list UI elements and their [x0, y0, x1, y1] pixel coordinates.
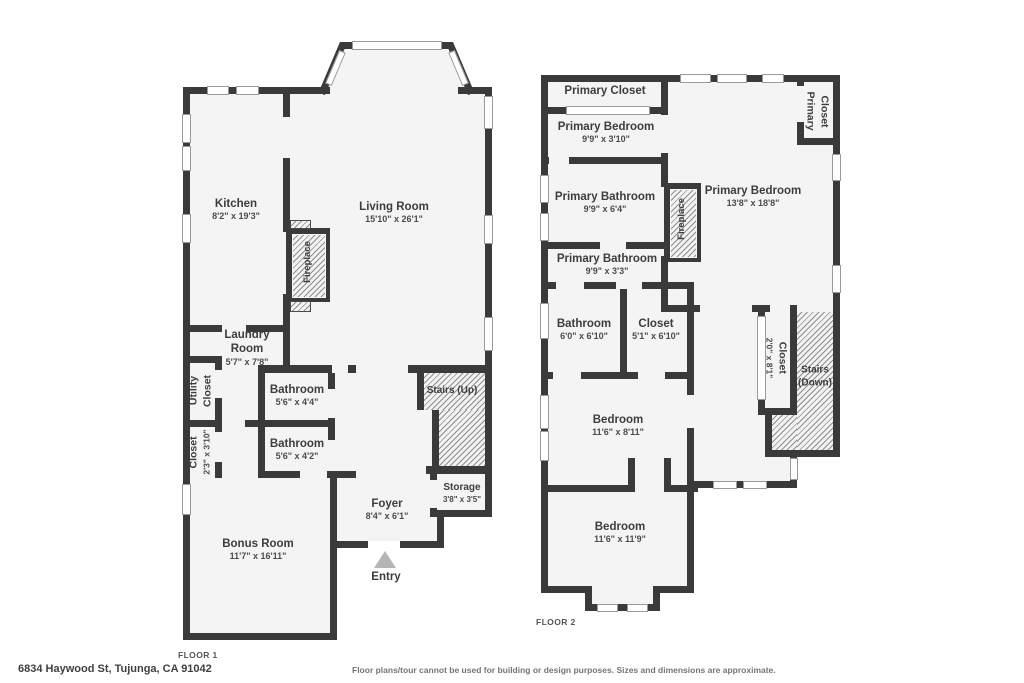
room-name: Living Room [359, 200, 429, 214]
wall [186, 420, 218, 427]
room-label-closet-small: Closet 5'1" x 6'10" [632, 317, 680, 343]
room-dims: 5'7" x 7'8" [215, 357, 279, 368]
window [182, 484, 191, 515]
room-name: Closet [202, 375, 215, 407]
door-opening [600, 242, 626, 249]
room-name: Primary Closet [564, 84, 645, 98]
door-opening [332, 365, 348, 373]
door-opening [300, 471, 327, 478]
room-dims: 2'0" x 8'1" [764, 338, 775, 378]
room-dims: 13'8" x 18'8" [705, 199, 802, 210]
floor1-foyer-floor [334, 430, 440, 545]
wall [758, 408, 797, 415]
room-label-closet: Closet 2'3" x 3'10" [188, 429, 213, 474]
door-opening [549, 157, 569, 164]
wall [283, 294, 290, 373]
window [182, 146, 191, 171]
wall [797, 138, 840, 145]
door-opening [638, 372, 665, 379]
door-opening [215, 370, 222, 398]
wall [330, 541, 372, 548]
window [790, 458, 798, 480]
fireplace-label: Fireplace [676, 198, 688, 246]
floor1-bay-floor [325, 44, 470, 92]
room-name: Closet [632, 317, 680, 331]
room-name: Primary Bedroom [558, 120, 655, 134]
window [540, 395, 549, 429]
floor1-caption: FLOOR 1 [178, 650, 218, 660]
window [540, 213, 549, 241]
window [182, 214, 191, 243]
room-name: Bathroom [270, 437, 324, 451]
room-name: Fireplace [302, 241, 314, 283]
window [540, 431, 549, 461]
room-dims: 2'3" x 3'10" [202, 429, 213, 474]
wall [283, 87, 290, 117]
wall [432, 410, 439, 466]
room-label-closet-tall: 2'0" x 8'1" Closet [764, 338, 789, 378]
room-label-bedroom-mid: Bedroom 11'6" x 8'11" [592, 413, 644, 439]
room-name: Bedroom [594, 520, 646, 534]
room-name: Stairs (Up) [427, 385, 478, 398]
door-opening [616, 282, 642, 289]
window [680, 74, 711, 83]
door-opening [661, 115, 668, 153]
wall [541, 485, 635, 492]
window [484, 215, 493, 244]
door-opening [687, 395, 694, 428]
wall [258, 367, 265, 478]
room-dims: 8'4" x 6'1" [366, 512, 409, 523]
room-name: Utility [187, 376, 200, 405]
window [540, 303, 549, 339]
room-label-primary-bedroom-small: Primary Bedroom 9'9" x 3'10" [558, 120, 655, 146]
room-label-bonus-room: Bonus Room 11'7" x 16'11" [222, 537, 294, 563]
window [832, 265, 841, 293]
room-dims: 9'9" x 6'4" [555, 205, 655, 216]
room-label-bathroom-lower: Bathroom 5'6" x 4'2" [270, 437, 324, 463]
window [207, 86, 229, 95]
window [484, 96, 493, 129]
wall [437, 514, 444, 548]
room-dims: 11'6" x 8'11" [592, 428, 644, 439]
window [743, 481, 767, 489]
room-label-bedroom-bottom: Bedroom 11'6" x 11'9" [594, 520, 646, 546]
room-label-foyer: Foyer 8'4" x 6'1" [366, 497, 409, 523]
wall [426, 466, 488, 474]
window [713, 481, 737, 489]
sliding-door-opening [566, 106, 650, 115]
wall [485, 87, 492, 517]
room-name: Bathroom [557, 317, 611, 331]
room-name: Bonus Room [222, 537, 294, 551]
window [236, 86, 259, 95]
stairs-up-label: Stairs (Up) [427, 385, 478, 398]
floor-plan-page: Kitchen 8'2" x 19'3" Living Room 15'10" … [0, 0, 1024, 683]
room-label-primary-bathroom-large: Primary Bathroom 9'9" x 6'4" [555, 190, 655, 216]
room-dims: 9'9" x 3'3" [557, 267, 657, 278]
room-label-laundry: Laundry Room 5'7" x 7'8" [215, 328, 279, 368]
room-name: Laundry Room [215, 328, 279, 357]
room-dims: 6'0" x 6'10" [557, 332, 611, 343]
window [762, 74, 784, 83]
room-dims: 11'7" x 16'11" [222, 552, 294, 563]
room-label-storage: Storage 3'8" x 3'5" [443, 482, 481, 505]
window [627, 604, 648, 612]
wall [330, 472, 337, 640]
room-name: Primary Bathroom [557, 252, 657, 266]
entry-arrow-icon [374, 551, 396, 568]
room-name: Closet [188, 436, 201, 468]
wall [328, 418, 335, 440]
room-label-utility-closet: Utility Closet [187, 375, 214, 407]
wall [765, 415, 772, 457]
room-name: Bedroom [592, 413, 644, 427]
wall [664, 458, 671, 488]
entry-opening [368, 541, 400, 548]
room-name: Foyer [366, 497, 409, 511]
wall [620, 289, 627, 375]
wall [661, 256, 668, 312]
disclaimer-text: Floor plans/tour cannot be used for buil… [352, 665, 776, 675]
room-label-bathroom-upper: Bathroom 5'6" x 4'4" [270, 383, 324, 409]
window [352, 41, 442, 50]
stairs-down-label: Stairs (Down) [790, 365, 840, 390]
floor2-caption: FLOOR 2 [536, 617, 576, 627]
wall [328, 373, 335, 389]
fireplace-hearth [290, 220, 311, 229]
room-name: Fireplace [676, 198, 688, 240]
door-opening [553, 372, 581, 379]
wall [183, 633, 337, 640]
wall [265, 420, 335, 427]
window [540, 175, 549, 203]
wall [770, 450, 840, 457]
property-address: 6834 Haywood St, Tujunga, CA 91042 [18, 663, 212, 675]
wall [790, 305, 797, 415]
room-name: Kitchen [212, 197, 260, 211]
window [717, 74, 747, 83]
room-label-living-room: Living Room 15'10" x 26'1" [359, 200, 429, 226]
room-dims: 5'1" x 6'10" [632, 332, 680, 343]
room-label-primary-bedroom: Primary Bedroom 13'8" x 18'8" [705, 184, 802, 210]
room-name: Entry [371, 570, 400, 584]
window [484, 317, 493, 351]
room-dims: 11'6" x 11'9" [594, 535, 646, 546]
room-label-primary-closet-right: Primary Closet [803, 91, 830, 130]
room-name: Closet [818, 95, 831, 127]
room-dims: 9'9" x 3'10" [558, 135, 655, 146]
wall [628, 458, 635, 488]
room-label-primary-closet-top: Primary Closet [564, 84, 645, 98]
room-name: Bathroom [270, 383, 324, 397]
room-dims: 15'10" x 26'1" [359, 215, 429, 226]
fireplace-hearth [290, 301, 311, 312]
room-dims: 3'8" x 3'5" [443, 494, 481, 504]
window [832, 154, 841, 181]
room-name: Primary [803, 91, 816, 130]
wall [687, 282, 694, 593]
door-opening [430, 480, 437, 508]
wall [283, 158, 290, 232]
door-opening [556, 282, 584, 289]
door-opening [700, 305, 752, 312]
window [182, 114, 191, 143]
room-label-bathroom: Bathroom 6'0" x 6'10" [557, 317, 611, 343]
room-name: Stairs (Down) [790, 365, 840, 390]
room-name: Storage [443, 482, 481, 495]
room-name: Closet [775, 342, 788, 374]
room-label-primary-bathroom-small: Primary Bathroom 9'9" x 3'3" [557, 252, 657, 278]
stairs-down-hatch [772, 415, 797, 450]
room-dims: 8'2" x 19'3" [212, 212, 260, 223]
room-label-kitchen: Kitchen 8'2" x 19'3" [212, 197, 260, 223]
entry-label: Entry [371, 570, 400, 584]
stairs-up-hatch [439, 410, 485, 466]
wall [437, 510, 492, 517]
room-name: Primary Bedroom [705, 184, 802, 198]
room-dims: 5'6" x 4'4" [270, 398, 324, 409]
window [597, 604, 618, 612]
room-name: Primary Bathroom [555, 190, 655, 204]
door-opening [215, 432, 222, 462]
room-dims: 5'6" x 4'2" [270, 452, 324, 463]
fireplace-label: Fireplace [302, 241, 314, 289]
